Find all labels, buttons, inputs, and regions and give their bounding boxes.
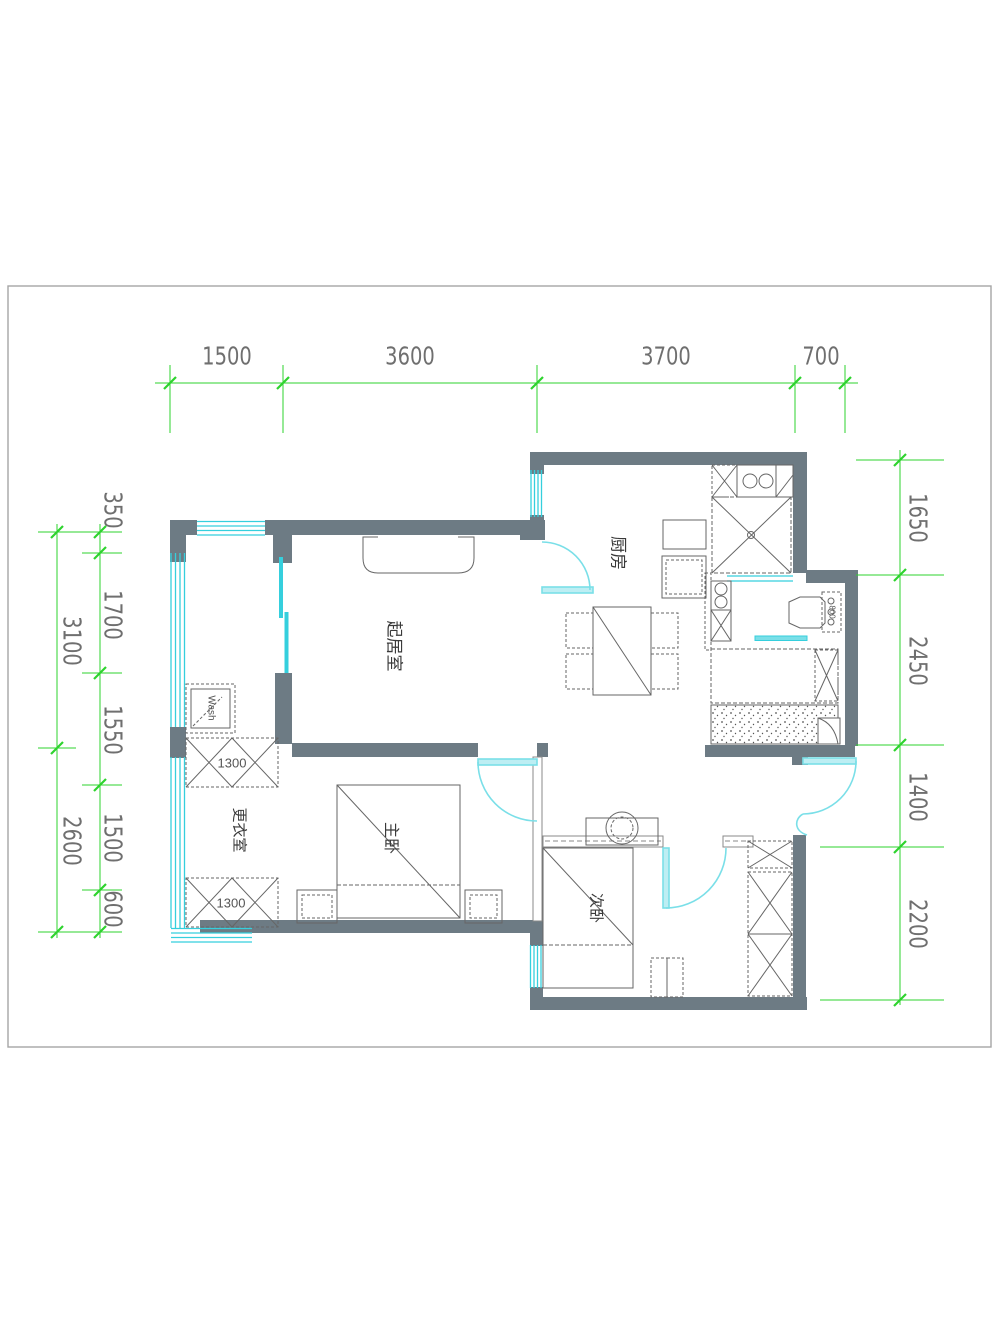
- nightstand-left: [297, 890, 337, 923]
- dim-left-1700: 1700: [99, 590, 128, 640]
- kitchen-cabinet-top: [663, 520, 706, 549]
- toilet-tank-label: 800: [828, 605, 837, 618]
- dim-right-2200: 2200: [904, 899, 933, 949]
- door-entry: [797, 758, 856, 835]
- window-second-bedroom: [531, 945, 542, 988]
- door-kitchen: [542, 542, 593, 593]
- dim-left-350: 350: [99, 491, 128, 528]
- floor-plan-canvas: 1500 3600 3700 700 3100 2600 350 1700 15…: [0, 0, 1000, 1333]
- dim-right-2450: 2450: [904, 636, 933, 686]
- dim-left-1500: 1500: [99, 813, 128, 863]
- door-master-bedroom: [478, 759, 537, 821]
- window-balcony-upper: [171, 553, 185, 727]
- kitchen-counter: [712, 465, 793, 497]
- kitchen-cabinet-bottom: [662, 556, 706, 598]
- dim-top-700: 700: [802, 342, 839, 371]
- nightstand-right: [465, 890, 502, 923]
- second-bedroom-wardrobe: [748, 841, 792, 996]
- dim-right-1400: 1400: [904, 772, 933, 822]
- window-balcony-lower: [171, 757, 185, 928]
- wardrobe-top-label: 1300: [218, 756, 247, 771]
- door-second-bedroom: [663, 848, 726, 908]
- second-bedroom-dresser: [651, 958, 683, 997]
- room-label-master: 主卧: [381, 822, 405, 854]
- floor-plan-linework: [0, 0, 1000, 1333]
- dim-top-3600: 3600: [385, 342, 435, 371]
- bathroom-basin: [711, 581, 731, 641]
- dining-table: [593, 607, 651, 695]
- dim-left-3100: 3100: [58, 616, 87, 666]
- window-kitchen-left: [531, 470, 542, 517]
- shower-screen: [755, 636, 807, 641]
- bathtub: [711, 649, 838, 703]
- room-label-living: 起居室: [384, 621, 409, 672]
- room-label-second: 次卧: [587, 893, 608, 923]
- windows: [171, 470, 793, 988]
- room-label-dressing: 更衣室: [230, 807, 251, 852]
- sofa: [363, 537, 474, 573]
- dim-left-600: 600: [99, 890, 128, 927]
- shower-floor: [711, 705, 840, 744]
- window-top-left: [197, 522, 265, 536]
- dim-top-1500: 1500: [202, 342, 252, 371]
- wardrobe-bottom-label: 1300: [217, 896, 246, 911]
- room-label-kitchen: 厨房: [608, 536, 633, 570]
- dim-top-3700: 3700: [641, 342, 691, 371]
- dimension-lines: [38, 365, 944, 1006]
- dim-left-2600: 2600: [58, 816, 87, 866]
- sliding-door-balcony: [279, 557, 289, 673]
- washer-label: Wash: [206, 695, 217, 720]
- dim-right-1650: 1650: [904, 493, 933, 543]
- window-kitchen-pass: [727, 576, 793, 581]
- dim-left-1550: 1550: [99, 705, 128, 755]
- refrigerator: [712, 497, 791, 573]
- partition-walls: [533, 757, 753, 921]
